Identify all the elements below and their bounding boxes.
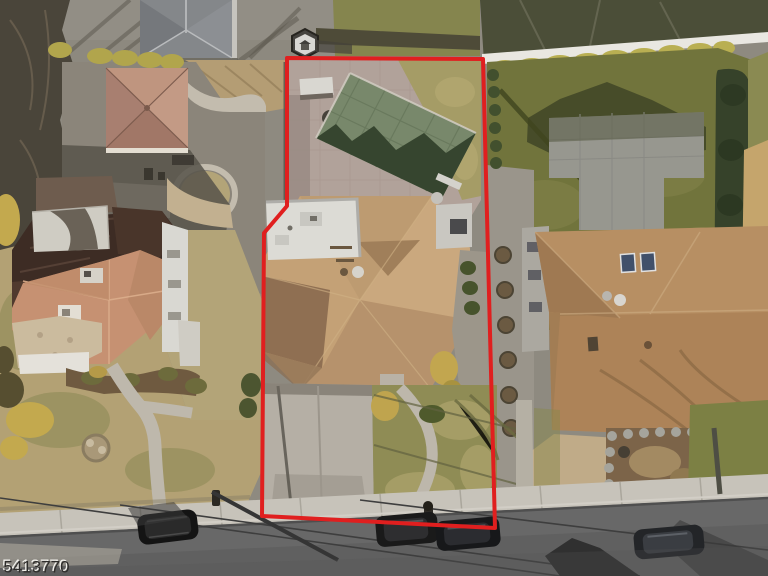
svg-text:5413770: 5413770: [3, 557, 69, 576]
